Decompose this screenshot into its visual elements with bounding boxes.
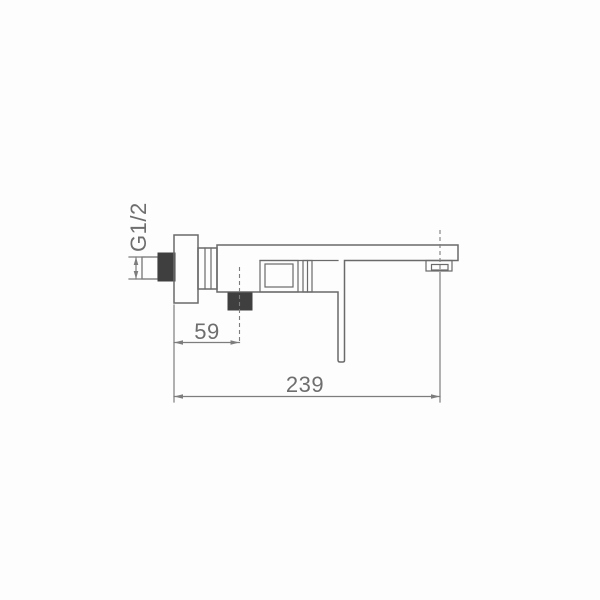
- supply-pipe-outline: [142, 257, 158, 279]
- arrow-right: [231, 340, 240, 345]
- dimension-239-label: 239: [286, 372, 324, 397]
- eccentric-connector: [158, 253, 175, 281]
- arrow-up: [134, 257, 139, 265]
- faucet-body-outline: [217, 245, 458, 362]
- drawing-canvas: G1/2 59 239: [0, 0, 600, 600]
- cartridge-inner-detail: [265, 264, 293, 287]
- thread-size-label: G1/2: [126, 202, 151, 252]
- wall-mounting-plate: [174, 235, 198, 303]
- faucet-technical-drawing: G1/2 59 239: [0, 0, 600, 600]
- arrow-down: [134, 271, 139, 279]
- arrow-right: [431, 394, 440, 399]
- arrow-left: [174, 394, 183, 399]
- dimension-59-label: 59: [194, 319, 219, 344]
- mounting-nut: [198, 248, 217, 289]
- arrow-left: [174, 340, 183, 345]
